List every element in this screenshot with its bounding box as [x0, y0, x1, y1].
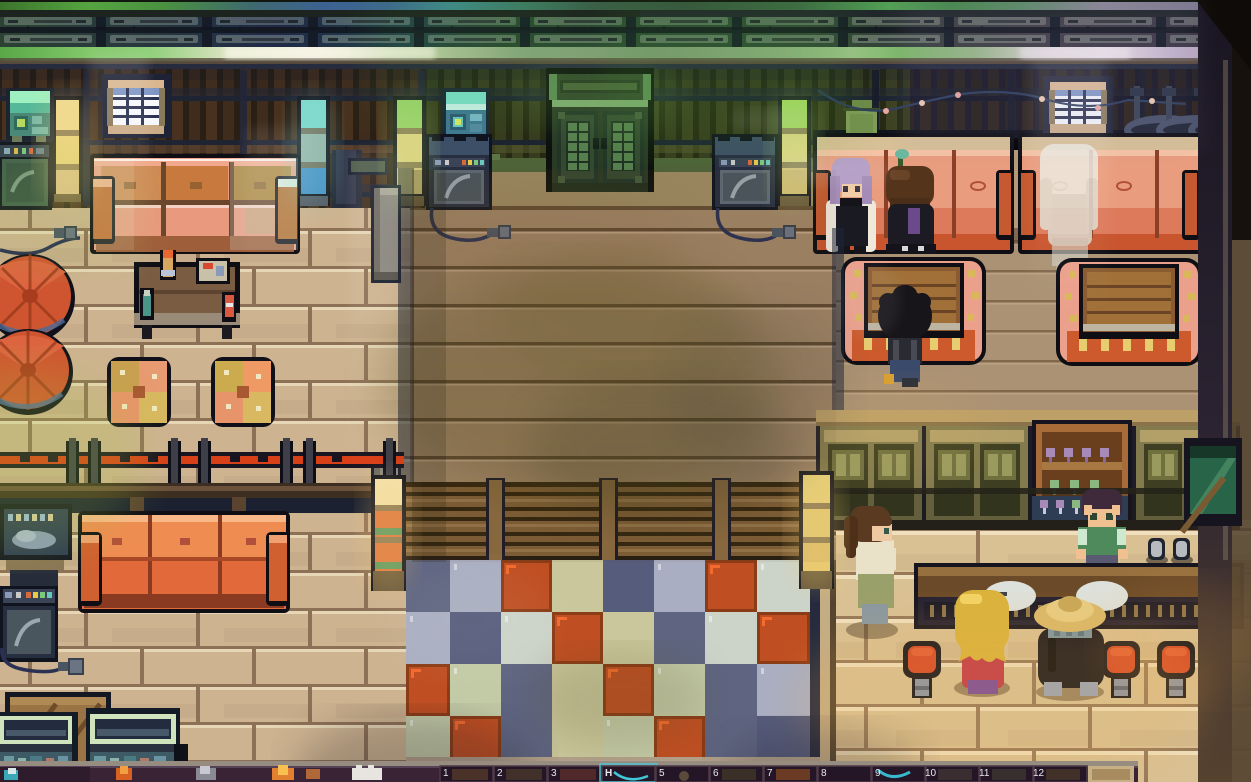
svg-text:6: 6 — [713, 768, 719, 779]
svg-text:7: 7 — [767, 768, 773, 779]
svg-text:1: 1 — [443, 768, 449, 779]
svg-text:9: 9 — [875, 768, 881, 779]
svg-text:3: 3 — [551, 768, 557, 779]
svg-text:2: 2 — [497, 768, 503, 779]
svg-text:8: 8 — [821, 768, 827, 779]
svg-text:5: 5 — [659, 768, 665, 779]
svg-text:H: H — [605, 768, 612, 779]
svg-text:10: 10 — [925, 768, 937, 779]
svg-text:12: 12 — [1033, 768, 1045, 779]
svg-text:11: 11 — [979, 768, 990, 779]
